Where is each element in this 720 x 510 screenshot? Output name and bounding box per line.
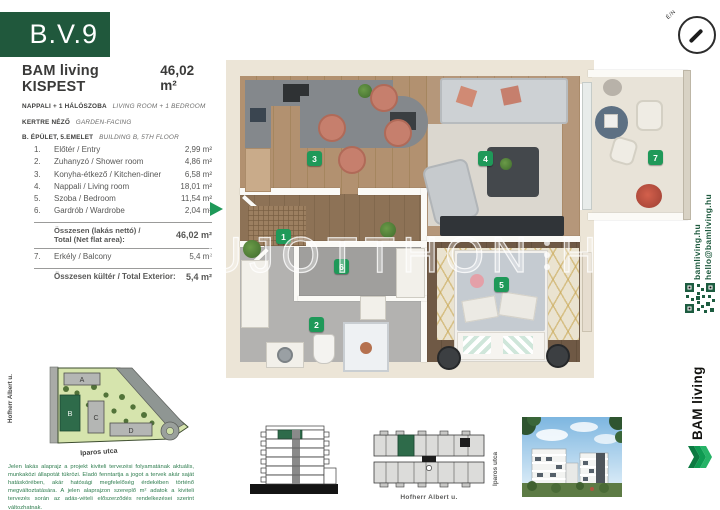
contact-block: bamliving.hu hello@bamliving.hu — [692, 162, 713, 280]
plan-badge-7: 7 — [648, 150, 663, 165]
room-area: 18,01 m² — [180, 182, 212, 191]
floor-plate-diagram — [370, 428, 488, 490]
balcony-glass-door — [582, 82, 592, 210]
bath-cabinet-column — [241, 260, 269, 328]
room-name: Gardrób / Wardrobe — [54, 206, 185, 215]
spec-lines: NAPPALI + 1 HÁLÓSZOBA LIVING ROOM + 1 BE… — [22, 99, 222, 146]
room-area: 11,54 m² — [181, 194, 212, 203]
qr-code — [684, 282, 716, 314]
room-name: Zuhanyzó / Shower room — [54, 157, 185, 166]
render-street-label: Iparos utca — [492, 434, 499, 486]
wardrobe-cabinet — [396, 248, 425, 298]
divider — [34, 268, 212, 269]
room-name: Nappali / Living room — [54, 182, 180, 191]
plan-badge-3: 3 — [307, 151, 322, 166]
street-label-left: Hofherr Albert u. — [7, 374, 14, 423]
street-strip — [50, 367, 58, 443]
toilet — [313, 334, 335, 364]
plan-badge-1: 1 — [276, 229, 291, 244]
dining-chair — [338, 146, 366, 174]
spec-line: KERTRE NÉZŐ GARDEN-FACING — [22, 115, 222, 131]
room-num: 4. — [20, 182, 54, 191]
kitchen-sink — [250, 108, 266, 122]
floorplate-street-label: Hofherr Albert u. — [369, 494, 489, 501]
legal-disclaimer: Jelen lakás alaprajz a projekt kiviteli … — [8, 463, 194, 510]
roundabout-center — [166, 427, 173, 434]
spec-en: LIVING ROOM + 1 BEDROOM — [113, 103, 206, 110]
compass-needle — [689, 29, 704, 44]
bed-flower-deco — [470, 274, 484, 288]
exterior-row: 7. Erkély / Balcony 5,4 m² — [20, 252, 212, 265]
net-total-label: Összesen (lakás nettó) / Total (Net flat… — [54, 226, 176, 245]
room-num: 3. — [20, 170, 54, 179]
bathroom-sink — [360, 296, 386, 320]
room-num: 7. — [20, 252, 54, 261]
wall-kitchen-hall-b — [358, 188, 427, 195]
dining-chair — [370, 84, 398, 112]
plan-badge-6: 6 — [334, 259, 349, 274]
room-row: 1. Előtér / Entry 2,99 m² — [20, 145, 212, 157]
contact-email: hello@bamliving.hu — [703, 162, 713, 280]
contact-web: bamliving.hu — [692, 162, 702, 280]
plan-badge-5: 5 — [494, 277, 509, 292]
room-num: 5. — [20, 194, 54, 203]
exterior-total-value: 5,4 m² — [186, 272, 212, 282]
highlighted-unit — [398, 435, 414, 456]
room-name: Konyha-étkező / Kitchen-diner — [54, 170, 185, 179]
room-area: 5,4 m² — [189, 252, 212, 261]
room-area: 6,58 m² — [185, 170, 212, 179]
divider — [34, 222, 212, 223]
room-row: 3. Konyha-étkező / Kitchen-diner 6,58 m² — [20, 170, 212, 182]
balcony-wall-bottom — [588, 213, 688, 220]
kitchen-cabinet-wood — [245, 148, 271, 192]
spec-line: NAPPALI + 1 HÁLÓSZOBA LIVING ROOM + 1 BE… — [22, 99, 222, 115]
dining-chair — [384, 119, 412, 147]
table-plant — [500, 158, 512, 170]
building-c-label: C — [93, 415, 98, 422]
balcony-armchair — [636, 100, 663, 131]
zigzag-pillow — [463, 336, 491, 354]
compass-label: É/N — [665, 9, 677, 21]
street-label-bottom: Iparos utca — [80, 448, 118, 458]
room-row: 5. Szoba / Bedroom 11,54 m² — [20, 194, 212, 206]
room-row: 6. Gardrób / Wardrobe 2,04 m² — [20, 206, 212, 218]
wall-exterior-left — [226, 60, 240, 378]
compass-icon — [678, 16, 716, 54]
nightstand — [546, 344, 570, 368]
room-row: 2. Zuhanyzó / Shower room 4,86 m² — [20, 157, 212, 169]
room-list: 1. Előtér / Entry 2,99 m² 2. Zuhanyzó / … — [20, 145, 212, 285]
building-render-image — [522, 417, 622, 497]
spec-hu: B. ÉPÜLET, 5.EMELET — [22, 134, 93, 141]
room-name: Erkély / Balcony — [54, 252, 189, 261]
wall-living-bedroom — [427, 236, 580, 242]
plan-badge-4: 4 — [478, 151, 493, 166]
wall-exterior-top — [226, 60, 594, 76]
room-area: 2,04 m² — [185, 206, 212, 215]
site-plan-map: Hofherr Albert u. A B C D Iparos utca — [2, 363, 198, 459]
room-area: 4,86 m² — [185, 157, 212, 166]
wall-wardrobe-vert — [294, 246, 299, 301]
balcony-flower-plant — [636, 184, 662, 208]
shower-stool — [360, 342, 372, 354]
net-total-row: Összesen (lakás nettó) / Total (Net flat… — [20, 226, 212, 245]
bedroom-window — [582, 252, 592, 332]
balcony-railing — [683, 70, 691, 220]
building-d-label: D — [128, 428, 133, 435]
spec-en: BUILDING B, 5TH FLOOR — [99, 134, 179, 141]
exterior-total-row: Összesen kültér / Total Exterior: 5,4 m² — [20, 272, 212, 282]
net-total-value: 46,02 m² — [176, 230, 212, 240]
room-area: 2,99 m² — [185, 145, 212, 154]
brochure-page: B.V.9 BAM living KISPEST 46,02 m² NAPPAL… — [0, 0, 720, 510]
project-header: BAM living KISPEST 46,02 m² — [22, 63, 212, 95]
project-name: BAM living KISPEST — [22, 63, 160, 95]
nightstand — [437, 346, 461, 370]
balcony-pouf — [603, 79, 622, 96]
brand-logotype: BAM living — [690, 352, 705, 440]
building-elevation-diagram — [248, 418, 340, 498]
zigzag-pillow — [503, 336, 533, 354]
spec-line: B. ÉPÜLET, 5.EMELET BUILDING B, 5TH FLOO… — [22, 130, 222, 146]
total-area: 46,02 m² — [160, 63, 212, 93]
room-num: 6. — [20, 206, 54, 215]
brand-chevrons-icon — [688, 446, 712, 468]
exterior-total-label: Összesen kültér / Total Exterior: — [54, 272, 186, 282]
building-a-label: A — [80, 377, 85, 384]
unit-id: B.V.9 — [0, 12, 110, 57]
room-name: Szoba / Bedroom — [54, 194, 181, 203]
balcony-wall-top — [588, 70, 688, 77]
room-num: 1. — [20, 145, 54, 154]
spec-en: GARDEN-FACING — [76, 119, 132, 126]
tv-console — [440, 216, 564, 236]
spec-hu: KERTRE NÉZŐ — [22, 119, 70, 126]
entry-plant — [243, 240, 261, 258]
coffee-table — [487, 147, 539, 197]
washer-door — [277, 347, 293, 363]
spec-hu: NAPPALI + 1 HÁLÓSZOBA — [22, 103, 107, 110]
plan-badge-2: 2 — [309, 317, 324, 332]
room-num: 2. — [20, 157, 54, 166]
building-b-label: B — [67, 409, 72, 418]
unit-id-box: B.V.9 — [0, 12, 110, 57]
dining-chair — [318, 114, 346, 142]
room-name: Előtér / Entry — [54, 145, 185, 154]
hall-plant — [380, 222, 396, 238]
room-row: 4. Nappali / Living room 18,01 m² — [20, 182, 212, 194]
entry-arrow-icon — [210, 202, 223, 216]
divider — [34, 248, 212, 249]
balcony-side-table — [604, 114, 618, 128]
